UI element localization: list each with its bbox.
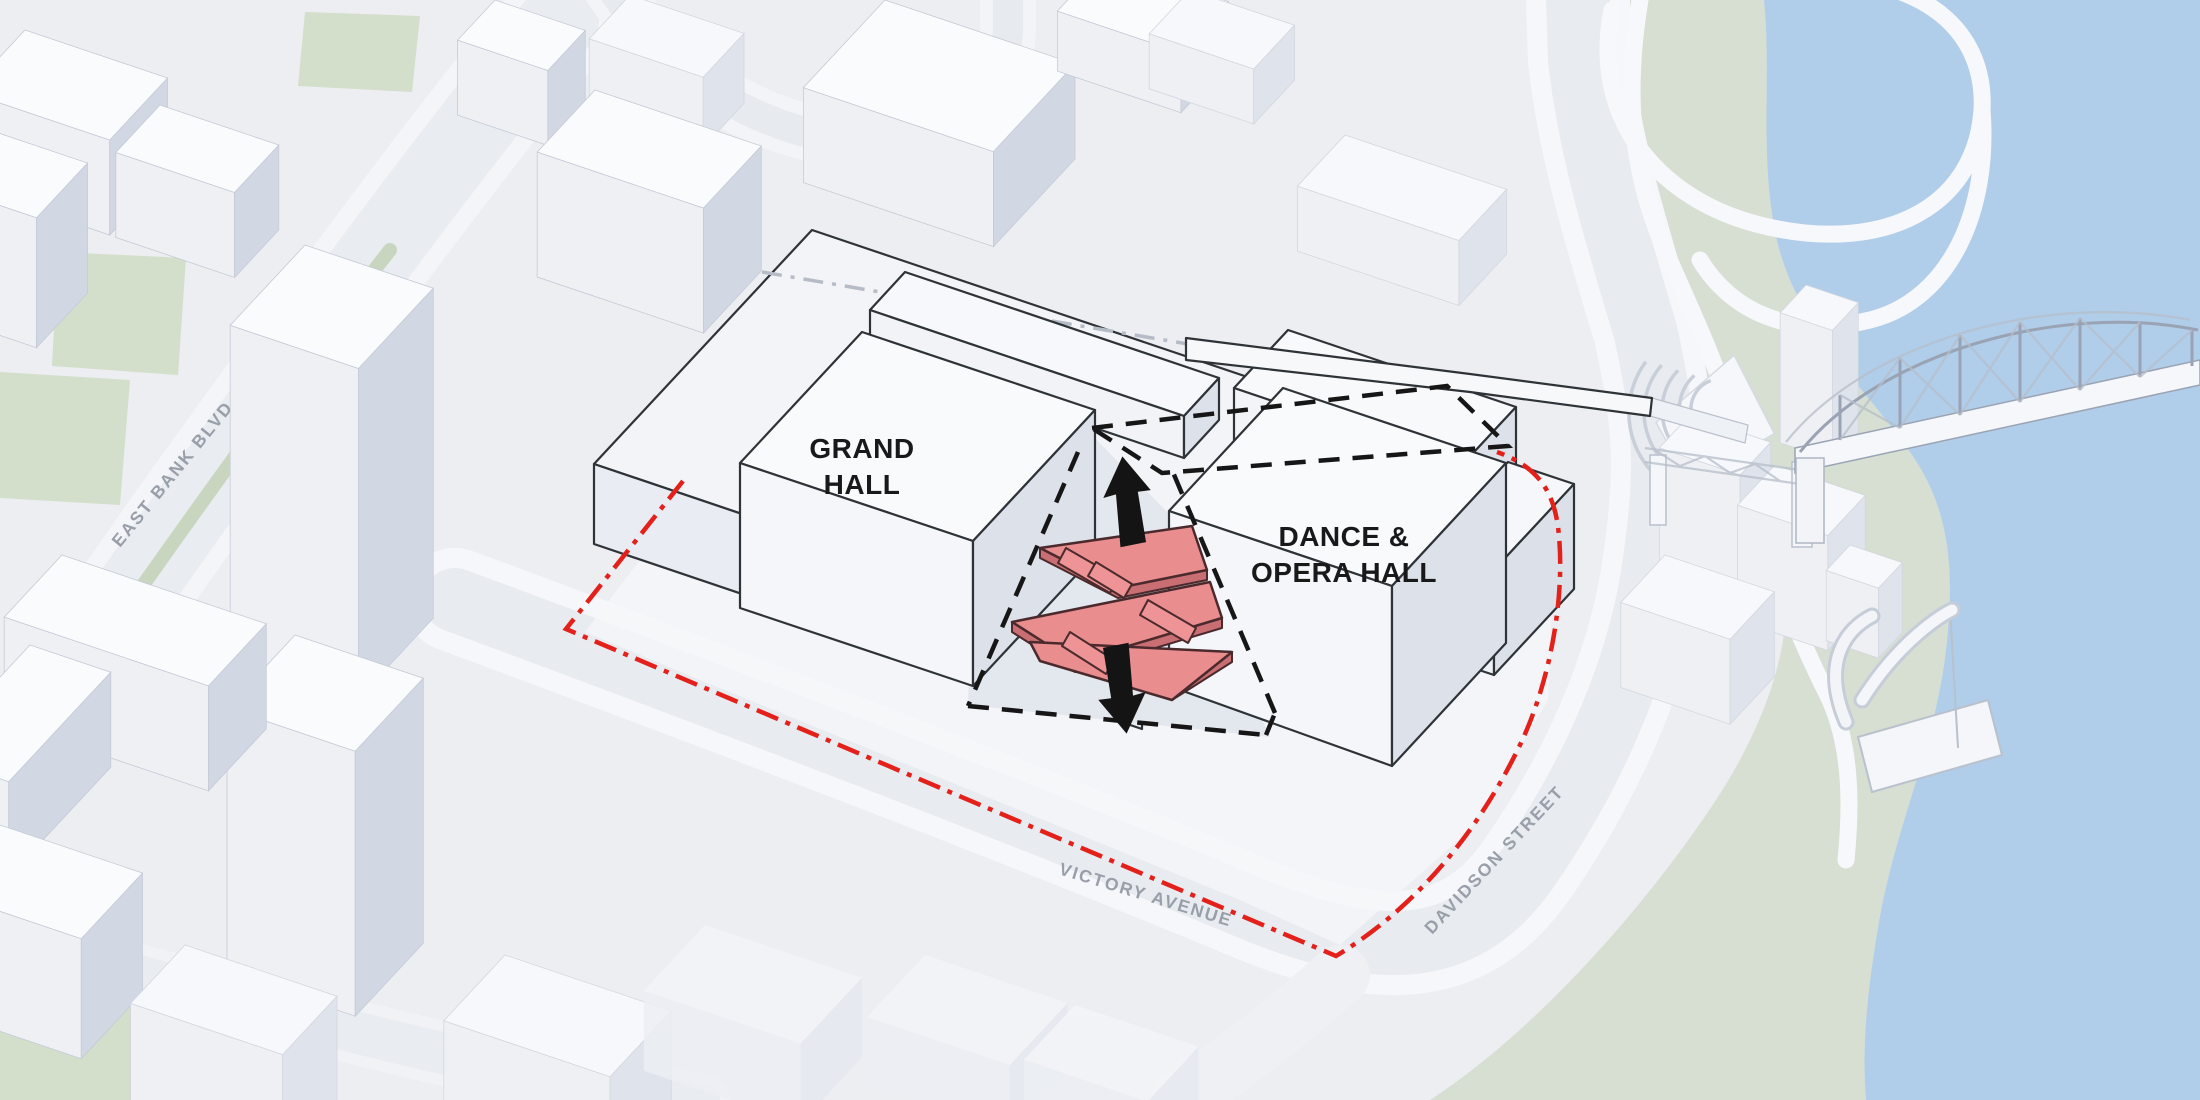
dance-hall-label-line1: DANCE & [1278,521,1409,552]
dance-hall-label-line2: OPERA HALL [1251,557,1437,588]
grand-hall-label-line1: GRAND [809,433,914,464]
grand-hall-label-line2: HALL [824,469,901,500]
bridge-pier [1796,458,1824,543]
site-diagram: GRAND HALL DANCE & OPERA HALL EAST BANK … [0,0,2200,1100]
site-diagram-canvas: GRAND HALL DANCE & OPERA HALL EAST BANK … [0,0,2200,1100]
lawn-patch [298,12,420,92]
lawn-patch [0,372,130,505]
